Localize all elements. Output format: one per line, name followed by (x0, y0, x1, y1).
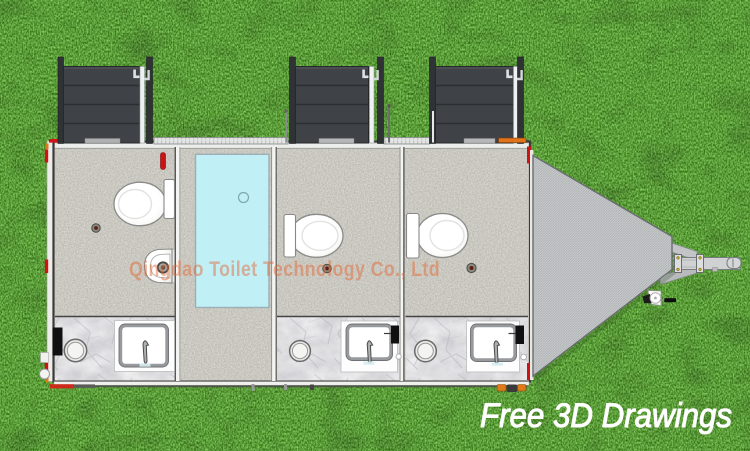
svg-text:Qingdao Toilet Technology Co.,: Qingdao Toilet Technology Co., Ltd (129, 258, 440, 281)
svg-text:Free 3D Drawings: Free 3D Drawings (480, 397, 732, 435)
